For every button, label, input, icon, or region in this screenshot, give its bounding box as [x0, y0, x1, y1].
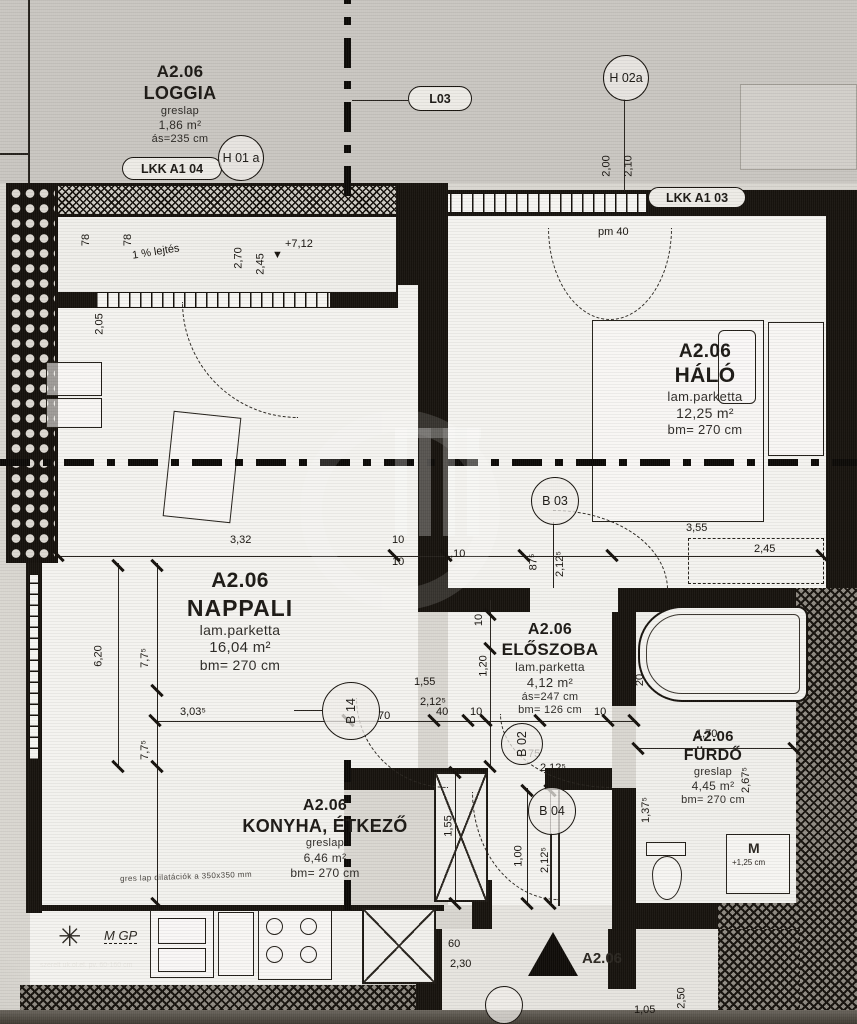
stove-burner: [300, 918, 317, 935]
room-area: 6,46 m²: [200, 851, 450, 866]
entrance-triangle-marker: [528, 932, 578, 976]
room-name: LOGGIA: [100, 83, 260, 105]
cabinet-dashed: [688, 538, 824, 584]
room-code: A2.06: [620, 340, 790, 363]
marker-leader-h02a: [624, 99, 625, 191]
marker-leader-b14: [294, 710, 322, 711]
room-name: ELŐSZOBA: [465, 640, 635, 661]
star-symbol: ✳: [58, 920, 81, 953]
nappali-table: [163, 411, 242, 524]
room-floor: lam.parketta: [620, 389, 790, 405]
dim-line: [118, 563, 119, 768]
floorplan-canvas: A2.06 LOGGIA greslap 1,86 m² ás=235 cm A…: [0, 0, 857, 1024]
stove-burner: [300, 946, 317, 963]
outside-topright-slab: [740, 84, 857, 170]
room-floor: greslap: [100, 105, 260, 118]
room-label-konyha: A2.06 KONYHA, ÉTKEZŐ greslap 6,46 m² bm=…: [200, 796, 450, 880]
stove-burner: [266, 946, 283, 963]
boundary-line-left: [28, 0, 30, 183]
room-height-2: bm= 126 cm: [465, 704, 635, 717]
sink-basin-1: [158, 918, 206, 944]
room-floor: greslap: [200, 837, 450, 850]
furdo-bottom-wall-hatch: [718, 903, 798, 929]
loggia-floor: [58, 217, 398, 297]
room-area: 4,12 m²: [465, 675, 635, 691]
room-label-loggia: A2.06 LOGGIA greslap 1,86 m² ás=235 cm: [100, 62, 260, 146]
window-stub-right: [330, 292, 398, 308]
entrance-unit-label: A2.06: [582, 950, 622, 967]
room-area: 4,45 m²: [648, 779, 778, 794]
nappali-halo-wall: [418, 216, 448, 612]
washing-machine-level: +1,25 cm: [732, 858, 765, 867]
room-height: ás=235 cm: [100, 133, 260, 146]
corridor-tiles-upper: [478, 905, 612, 929]
room-name: HÁLÓ: [620, 363, 790, 389]
section-line-horizontal: [0, 459, 857, 466]
dishwasher: [218, 912, 254, 976]
dim-line: [58, 556, 824, 557]
marker-leader-l03: [352, 100, 408, 101]
room-floor: lam.parketta: [140, 622, 340, 639]
fridge-box: [362, 908, 436, 984]
room-area: 12,25 m²: [620, 405, 790, 422]
bottom-photo-edge: [0, 1010, 857, 1024]
room-label-furdo: A2.06 FÜRDŐ greslap 4,45 m² bm= 270 cm: [648, 728, 778, 807]
room-code: A2.06: [200, 796, 450, 816]
room-code: A2.06: [465, 620, 635, 640]
sideboard-lower: [46, 398, 102, 428]
washing-machine-label: M: [748, 840, 760, 856]
sink-basin-2: [158, 948, 206, 972]
room-floor: greslap: [648, 766, 778, 779]
room-name: KONYHA, ÉTKEZŐ: [200, 816, 450, 838]
window-stub-left: [58, 292, 96, 308]
room-name: NAPPALI: [140, 594, 340, 622]
stove-burner: [266, 918, 283, 935]
bathtub: [638, 606, 808, 702]
dim-line: [527, 788, 528, 905]
room-area: 16,04 m²: [140, 639, 340, 657]
bottom-note: szerelt uk.ol.el. pv. 60-160 cm: [40, 962, 132, 969]
right-outer-wall: [826, 210, 857, 588]
room-code: A2.06: [648, 728, 778, 746]
room-height: bm= 270 cm: [620, 422, 790, 438]
dim-line: [455, 770, 456, 905]
boundary-line-top: [0, 153, 30, 155]
room-code: A2.06: [100, 62, 260, 83]
room-name: FÜRDŐ: [648, 746, 778, 766]
furdo-bottom-wall: [612, 903, 720, 929]
door-jamb-line: [558, 790, 560, 906]
room-label-eloszoba: A2.06 ELŐSZOBA lam.parketta 4,12 m² ás=2…: [465, 620, 635, 718]
eloszoba-furdo-wall-bottom: [612, 788, 636, 905]
toilet-tank: [646, 842, 686, 856]
room-label-halo: A2.06 HÁLÓ lam.parketta 12,25 m² bm= 270…: [620, 340, 790, 438]
room-code: A2.06: [140, 568, 340, 594]
room-height: ás=247 cm: [465, 691, 635, 704]
left-window: [29, 575, 39, 760]
room-label-nappali: A2.06 NAPPALI lam.parketta 16,04 m² bm= …: [140, 568, 340, 674]
marker-leader-b04: [551, 833, 552, 903]
loggia-parapet-wall: [30, 183, 398, 217]
room-area: 1,86 m²: [100, 118, 260, 133]
mgp-label: M GP: [104, 928, 137, 944]
marker-leader-b03: [553, 522, 554, 588]
room-height: bm= 270 cm: [140, 657, 340, 674]
section-line-vertical-top: [344, 0, 351, 196]
room-floor: lam.parketta: [465, 660, 635, 675]
halo-door-opening: [530, 588, 618, 612]
room-height: bm= 270 cm: [648, 794, 778, 807]
bottom-outer-wall: [20, 985, 440, 1012]
sideboard-upper: [46, 362, 102, 396]
dim-line: [155, 721, 637, 722]
